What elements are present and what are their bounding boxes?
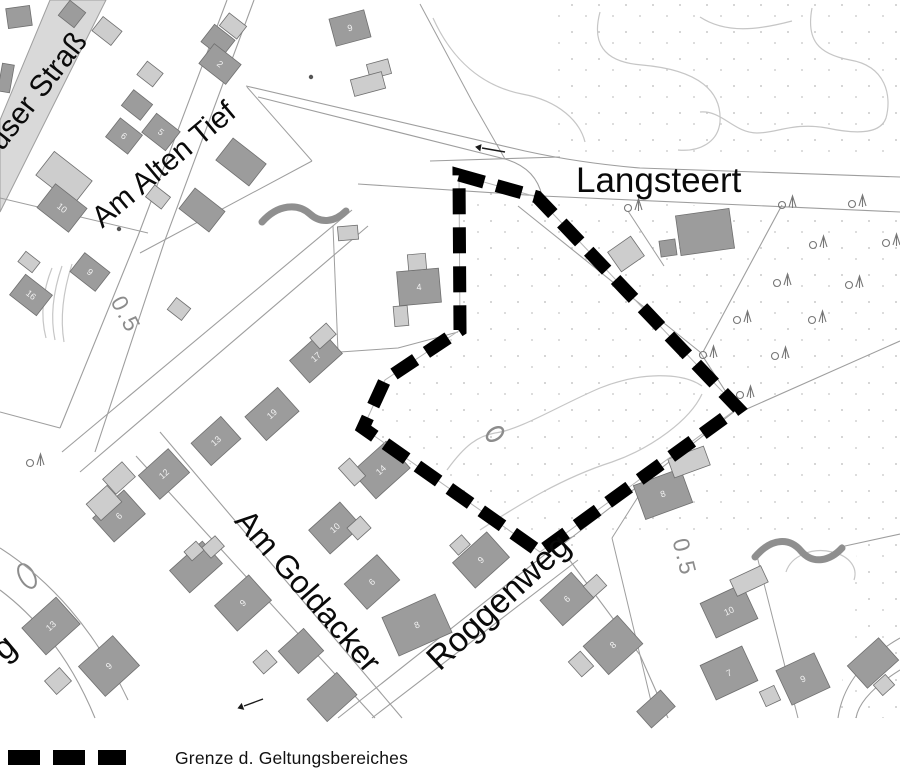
building-footprint bbox=[18, 251, 40, 272]
contour-ring bbox=[14, 561, 39, 591]
building-annex bbox=[568, 651, 593, 677]
building-footprint bbox=[6, 5, 33, 28]
building: 9 bbox=[70, 253, 110, 292]
building: 9 bbox=[776, 653, 830, 705]
building bbox=[216, 138, 266, 186]
building-annex bbox=[393, 305, 409, 326]
building: 13 bbox=[191, 416, 241, 465]
building: 9 bbox=[329, 10, 371, 46]
building: 16 bbox=[10, 274, 53, 315]
building-footprint bbox=[92, 17, 122, 46]
building-annex bbox=[167, 298, 190, 321]
building bbox=[307, 672, 357, 721]
building-footprint bbox=[393, 305, 409, 326]
building-footprint bbox=[407, 253, 426, 271]
building-annex bbox=[137, 61, 163, 87]
dotted-terrain-region bbox=[555, 0, 900, 160]
building: 6 bbox=[344, 555, 399, 610]
contour-line bbox=[786, 551, 855, 580]
building-footprint bbox=[337, 225, 358, 241]
building-footprint bbox=[675, 208, 734, 255]
building-annex bbox=[253, 650, 277, 674]
building-footprint bbox=[179, 188, 225, 232]
contour-line bbox=[53, 266, 62, 340]
point-marker bbox=[117, 227, 121, 231]
conifer-glyph bbox=[859, 195, 866, 207]
building-footprint bbox=[137, 61, 163, 87]
building: 9 bbox=[79, 636, 140, 697]
legend: Grenze d. Geltungsbereiches bbox=[0, 742, 900, 772]
building-annex bbox=[350, 72, 385, 97]
legend-boundary-dash-swatch bbox=[8, 750, 126, 765]
tree-circle bbox=[27, 460, 34, 467]
building-annex bbox=[45, 668, 72, 695]
flow-arrow-line bbox=[244, 699, 263, 706]
building: 13 bbox=[22, 597, 80, 655]
conifer-glyph bbox=[789, 196, 796, 208]
legend-boundary-label: Grenze d. Geltungsbereiches bbox=[175, 748, 408, 769]
point-marker bbox=[309, 75, 313, 79]
contour-line bbox=[62, 264, 72, 342]
parcel-line bbox=[0, 412, 60, 428]
arrowhead-icon bbox=[237, 703, 244, 710]
building-footprint bbox=[659, 239, 677, 257]
building-footprint bbox=[637, 690, 676, 728]
building: 7 bbox=[700, 646, 758, 700]
building bbox=[278, 628, 323, 673]
building-annex bbox=[730, 566, 768, 597]
building-annex bbox=[407, 253, 426, 271]
stream-line bbox=[262, 207, 346, 222]
building: 10 bbox=[700, 584, 758, 638]
building bbox=[0, 63, 14, 93]
contour-elevation-label: 0.5 bbox=[106, 291, 147, 337]
site-plan-page: 2561016994171419131261399106896810798Lan… bbox=[0, 0, 900, 776]
building: 19 bbox=[245, 387, 299, 440]
building-footprint bbox=[350, 72, 385, 97]
parcel-line bbox=[420, 4, 473, 103]
building-footprint bbox=[568, 651, 593, 677]
building-annex bbox=[18, 251, 40, 272]
building-footprint bbox=[759, 685, 780, 706]
building bbox=[121, 90, 152, 121]
street-label-langsteert: Langsteert bbox=[576, 161, 742, 200]
building: 2 bbox=[199, 44, 241, 85]
road-edge-line bbox=[62, 210, 352, 452]
building: 9 bbox=[215, 575, 272, 631]
building-footprint bbox=[278, 628, 323, 673]
building bbox=[659, 239, 677, 257]
building bbox=[675, 208, 734, 255]
building bbox=[179, 188, 225, 232]
building-footprint bbox=[45, 668, 72, 695]
map-canvas: 2561016994171419131261399106896810798Lan… bbox=[0, 0, 900, 776]
building: 4 bbox=[397, 268, 442, 306]
building bbox=[637, 690, 676, 728]
building-footprint bbox=[121, 90, 152, 121]
contour-elevation-label: 0.5 bbox=[668, 535, 702, 578]
building-footprint bbox=[730, 566, 768, 597]
arrowhead-icon bbox=[475, 144, 481, 151]
road-edge-line bbox=[430, 157, 560, 161]
building: 12 bbox=[138, 449, 189, 500]
parcel-line bbox=[247, 87, 312, 161]
dotted-terrain-region bbox=[838, 534, 900, 718]
building-footprint bbox=[216, 138, 266, 186]
building-footprint bbox=[167, 298, 190, 321]
building-annex bbox=[337, 225, 358, 241]
street-label-street-partial-g: g bbox=[0, 627, 24, 668]
flow-arrow-line bbox=[482, 148, 505, 152]
building-footprint bbox=[0, 63, 14, 93]
building-footprint bbox=[253, 650, 277, 674]
tree-circle bbox=[849, 201, 856, 208]
dotted-terrain-region bbox=[362, 172, 900, 556]
conifer-glyph bbox=[37, 454, 44, 466]
building-annex bbox=[759, 685, 780, 706]
building-footprint bbox=[307, 672, 357, 721]
building: 6 bbox=[106, 118, 143, 154]
building-annex bbox=[92, 17, 122, 46]
house-number: 4 bbox=[416, 282, 422, 292]
building bbox=[6, 5, 33, 28]
tree-icon bbox=[849, 195, 867, 208]
tree-icon bbox=[27, 454, 45, 467]
